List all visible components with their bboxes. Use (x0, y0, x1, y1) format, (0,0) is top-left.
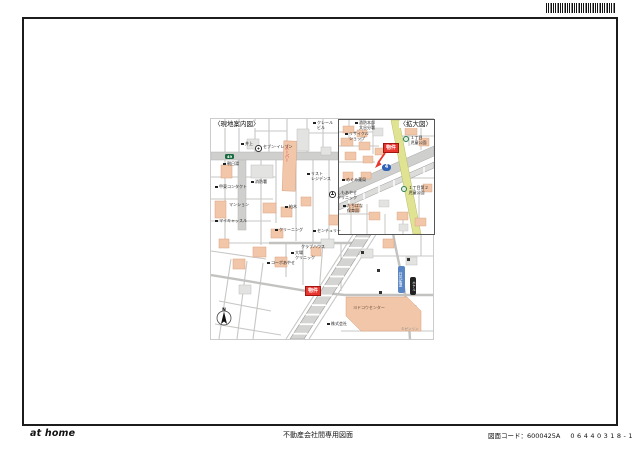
poi-square-icon (267, 262, 270, 265)
poi-label: 消防署 (251, 180, 267, 185)
poi-square-icon (327, 323, 330, 326)
barcode (546, 3, 616, 13)
map-credit: ©ゼンリン (401, 327, 419, 332)
poi-square-icon (355, 122, 358, 125)
poi-label: 大場 クリニック (291, 251, 315, 260)
poi-square-icon (343, 205, 346, 208)
prefectural-road-shield: 49 (225, 154, 234, 160)
convenience-store-icon (255, 145, 262, 152)
poi-square-icon (215, 220, 218, 223)
clinic-label: しもあやせ クリニック (329, 191, 357, 200)
main-map-title: 〈現地案内図〉 (213, 121, 261, 128)
poi-label: 株式会社 (327, 322, 347, 327)
poi-square-icon (361, 251, 364, 254)
poi-label: たちばな 保育園 (343, 204, 363, 213)
location-map: 〈現地案内図〉 井上 セブン-イレブン 朝日湯 消防署 甲東コンタクト リスト … (210, 118, 434, 340)
store-vertical-label: スーパー (285, 146, 289, 162)
property-marker: 物件 (383, 143, 399, 153)
property-marker: 物件 (305, 286, 321, 296)
poi-label: クリーニング (275, 228, 303, 233)
document-page: 〈現地案内図〉 井上 セブン-イレブン 朝日湯 消防署 甲東コンタクト リスト … (0, 0, 640, 451)
drawing-code: 図面コード：6000425A 06440318-1 (488, 430, 635, 440)
poi-square-icon (342, 179, 345, 182)
poi-label: 朝日湯 (223, 162, 239, 167)
poi-label: マンション (229, 203, 249, 208)
park-icon (403, 136, 409, 142)
poi-label: マイキャッスル (215, 219, 247, 224)
poi-label: 甲東コンタクト (215, 185, 247, 190)
poi-label: センチュリー (313, 229, 341, 234)
route-4-shield: 4 (382, 164, 391, 171)
poi-label: 柏木 (285, 205, 297, 210)
poi-square-icon (291, 252, 294, 255)
poi-label: リサイクル ショップ (345, 132, 369, 141)
poi-label: コーポあやせ (267, 261, 295, 266)
drawing-code-label: 図面コード：6000425A (488, 432, 560, 440)
drawing-code-number: 06440318-1 (570, 432, 635, 440)
north-arrow: N (216, 309, 232, 333)
hotel-vertical-label: ホテル (410, 277, 416, 295)
big-building-label: ヨドコウセンター (353, 305, 385, 311)
poi-square-icon (285, 206, 288, 209)
poi-square-icon (407, 258, 410, 261)
inset-map-title: 〈拡大図〉 (399, 121, 434, 128)
poi-label: めぐみ薬局 (342, 178, 366, 183)
poi-square-icon (313, 122, 316, 125)
clinic-icon (329, 191, 336, 198)
poi-label: クラブハウス (301, 245, 325, 250)
compass-icon (216, 309, 232, 327)
poi-square-icon (275, 229, 278, 232)
poi-square-icon (215, 186, 218, 189)
poi-label: リスト レジデンス (307, 172, 331, 181)
poi-square-icon (251, 181, 254, 184)
poi-square-icon (377, 269, 380, 272)
road-name-banner: 日光街道 (398, 266, 405, 293)
enlarged-map: 〈拡大図〉 消防本部 大谷分署 リサイクル ショップ １丁目 児童公園 １丁目第… (338, 119, 435, 235)
poi-label: 消防本部 大谷分署 (355, 121, 375, 130)
poi-square-icon (313, 230, 316, 233)
poi-square-icon (345, 133, 348, 136)
poi-square-icon (241, 143, 244, 146)
poi-square-icon (223, 163, 226, 166)
poi-label: 井上 (241, 142, 253, 147)
park-icon (401, 186, 407, 192)
poi-label: クレール ビル (313, 121, 333, 130)
poi-square-icon (379, 291, 382, 294)
park-label: １丁目第２ 児童公園 (401, 186, 429, 195)
poi-square-icon (307, 173, 310, 176)
park-label: １丁目 児童公園 (403, 136, 427, 145)
